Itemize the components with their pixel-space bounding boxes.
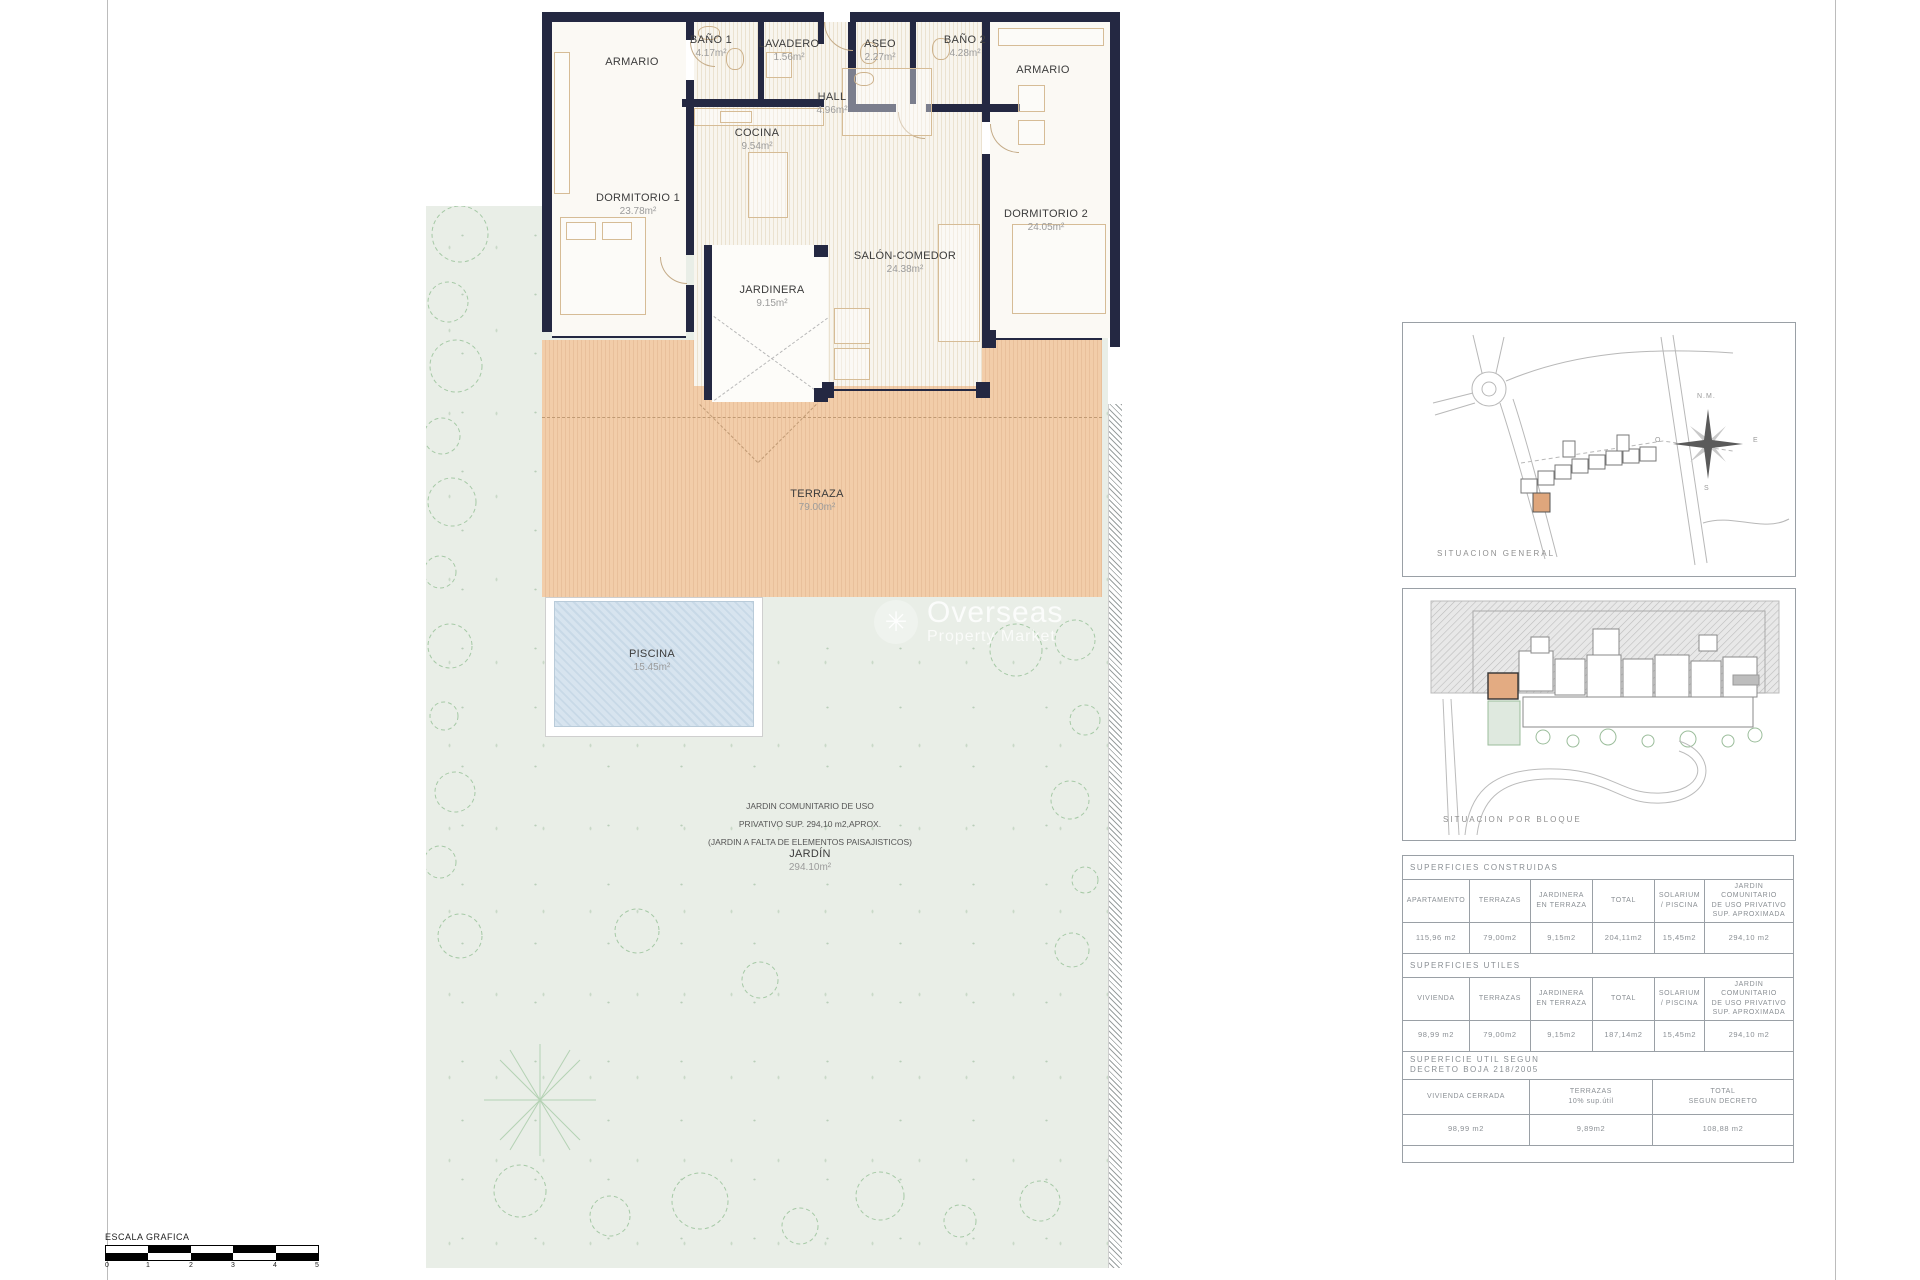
tree	[1051, 781, 1089, 819]
table-value-cell: 115,96 m2	[1403, 923, 1469, 953]
room-area-jardinera: 9.15m²	[739, 298, 804, 309]
room-area-dormitorio2: 24.05m²	[1004, 222, 1088, 233]
compass-north-label: N.M.	[1697, 393, 1716, 400]
table-header-cell: TOTAL SEGUN DECRETO	[1652, 1080, 1793, 1114]
plan-sheet: ARMARIO BAÑO 14.17m² LAVADERO1.56m² ASEO…	[0, 0, 1920, 1280]
table-header-cell: JARDIN COMUNITARIO DE USO PRIVATIVO SUP.…	[1704, 978, 1793, 1020]
window	[834, 389, 976, 391]
situation-bloque-map	[1403, 589, 1793, 838]
table-value-cell: 9,15m2	[1530, 923, 1592, 953]
palm-tree	[484, 1044, 596, 1156]
tree	[432, 206, 488, 262]
wall	[976, 382, 990, 398]
furniture-armchair	[834, 348, 870, 380]
watermark-brand: Overseas	[927, 598, 1063, 628]
room-label-cocina: COCINA	[735, 127, 780, 139]
scale-ticks: 0 1 2 3 4 5	[105, 1262, 319, 1274]
room-label-jardin: JARDÍN	[789, 848, 831, 860]
table-header-cell: JARDINERA EN TERRAZA	[1530, 978, 1592, 1020]
situation-general-caption: SITUACION GENERAL	[1437, 549, 1555, 558]
table-value-cell: 15,45m2	[1654, 923, 1704, 953]
room-area-hall: 4.96m²	[816, 105, 847, 116]
compass-rose-icon	[1673, 409, 1743, 479]
situation-bloque-caption: SITUACION POR BLOQUE	[1443, 815, 1582, 824]
room-area-terraza: 79.00m²	[790, 502, 843, 513]
room-area-jardin: 294.10m²	[789, 862, 831, 873]
situation-general-map	[1403, 323, 1793, 574]
room-area-dormitorio1: 23.78m²	[596, 206, 680, 217]
table-header-cell: TERRAZAS	[1469, 880, 1530, 922]
tree	[426, 418, 460, 454]
table-header-cell: JARDINERA EN TERRAZA	[1530, 880, 1592, 922]
wall	[982, 112, 990, 122]
table-value-row: 115,96 m2 79,00m2 9,15m2 204,11m2 15,45m…	[1403, 923, 1793, 954]
tree	[856, 1172, 904, 1220]
room-label-salon: SALÓN-COMEDOR	[854, 250, 956, 262]
compass-west-label: O	[1655, 437, 1661, 444]
tree	[428, 478, 476, 526]
furniture-cabinet	[1018, 85, 1045, 112]
tree	[742, 962, 778, 998]
table-header-cell: JARDIN COMUNITARIO DE USO PRIVATIVO SUP.…	[1704, 880, 1793, 922]
tree	[438, 914, 482, 958]
scale-tick: 4	[273, 1262, 277, 1269]
tree	[430, 702, 458, 730]
highlighted-unit	[1488, 673, 1518, 699]
table-value-cell: 79,00m2	[1469, 923, 1530, 953]
tree	[494, 1165, 546, 1217]
furniture-hob	[720, 111, 752, 123]
tree	[1072, 867, 1098, 893]
furniture-wardrobe	[998, 28, 1104, 46]
room-area-cocina: 9.54m²	[735, 141, 780, 152]
scale-tick: 2	[189, 1262, 193, 1269]
room-floor-jardinera	[712, 245, 828, 402]
table-header-cell: TERRAZAS	[1469, 978, 1530, 1020]
table-header-cell: SOLARIUM / PISCINA	[1654, 978, 1704, 1020]
room-label-dormitorio2: DORMITORIO 2	[1004, 208, 1088, 220]
wall	[1110, 22, 1120, 347]
wall	[926, 104, 1020, 112]
room-area-bano2: 4.28m²	[944, 48, 986, 59]
table-value-cell: 294,10 m2	[1704, 1021, 1793, 1051]
table-bottom-padding	[1403, 1146, 1793, 1162]
tree	[428, 624, 472, 668]
tree	[944, 1205, 976, 1237]
tree	[782, 1208, 818, 1244]
furniture-bed	[1012, 224, 1106, 314]
graphic-scale: ESCALA GRAFICA 0 1 2 3 4 5	[105, 1232, 319, 1274]
tree	[1070, 705, 1100, 735]
table-title-useful: SUPERFICIES UTILES	[1403, 954, 1793, 978]
door-opening	[824, 12, 850, 22]
tree	[426, 846, 456, 878]
wall	[542, 22, 552, 332]
tree	[430, 340, 482, 392]
tree	[435, 772, 475, 812]
table-value-cell: 294,10 m2	[1704, 923, 1793, 953]
room-label-piscina: PISCINA	[629, 648, 675, 660]
room-label-dormitorio1: DORMITORIO 1	[596, 192, 680, 204]
window	[552, 336, 686, 338]
furniture-island	[748, 152, 788, 218]
table-value-cell: 9,89m2	[1529, 1115, 1652, 1145]
table-value-cell: 9,15m2	[1530, 1021, 1592, 1051]
table-value-cell: 98,99 m2	[1403, 1021, 1469, 1051]
wall	[814, 245, 828, 257]
room-area-aseo: 2.27m²	[864, 52, 896, 63]
tree	[590, 1196, 630, 1236]
boundary-hatch	[1108, 404, 1122, 1268]
room-label-hall: HALL	[818, 91, 847, 103]
sheet-border-left	[107, 0, 108, 1280]
roof-dashed-line	[699, 404, 758, 463]
furniture-pillow	[602, 222, 632, 240]
watermark-tagline: Property Market	[927, 628, 1063, 646]
tree	[672, 1173, 728, 1229]
room-area-salon: 24.38m²	[854, 264, 956, 275]
scale-tick: 0	[105, 1262, 109, 1269]
room-label-aseo: ASEO	[864, 38, 896, 50]
table-header-cell: APARTAMENTO	[1403, 880, 1469, 922]
wall	[682, 99, 824, 107]
window	[996, 338, 1102, 340]
scale-label: ESCALA GRAFICA	[105, 1232, 319, 1242]
room-label-lavadero: LAVADERO	[759, 38, 820, 50]
room-label-jardinera: JARDINERA	[739, 284, 804, 296]
furniture-cabinet	[1018, 120, 1045, 145]
furniture-armchair	[834, 308, 870, 344]
room-area-bano1: 4.17m²	[690, 48, 732, 59]
room-area-piscina: 15.45m²	[629, 662, 675, 673]
room-label-bano1: BAÑO 1	[690, 34, 732, 46]
furniture-pillow	[566, 222, 596, 240]
table-value-cell: 15,45m2	[1654, 1021, 1704, 1051]
table-value-cell: 187,14m2	[1592, 1021, 1654, 1051]
room-area-lavadero: 1.56m²	[759, 52, 820, 63]
tree	[426, 556, 456, 588]
table-header-cell: SOLARIUM / PISCINA	[1654, 880, 1704, 922]
tree	[1020, 1181, 1060, 1221]
garden-note: JARDIN COMUNITARIO DE USO PRIVATIVO SUP.…	[708, 801, 912, 847]
table-title-constructed: SUPERFICIES CONSTRUIDAS	[1403, 856, 1793, 880]
furniture-wardrobe	[554, 52, 570, 194]
table-header-cell: TERRAZAS 10% sup.útil	[1529, 1080, 1652, 1114]
table-value-cell: 204,11m2	[1592, 923, 1654, 953]
table-title-decree: SUPERFICIE UTIL SEGUN DECRETO BOJA 218/2…	[1403, 1052, 1793, 1080]
scale-tick: 1	[146, 1262, 150, 1269]
table-header-row: APARTAMENTO TERRAZAS JARDINERA EN TERRAZ…	[1403, 880, 1793, 923]
watermark: ✳ Overseas Property Market	[874, 598, 1063, 646]
wall	[814, 388, 828, 402]
table-value-cell: 79,00m2	[1469, 1021, 1530, 1051]
table-header-cell: VIVIENDA CERRADA	[1403, 1080, 1529, 1114]
tree	[428, 282, 468, 322]
highlighted-unit	[1533, 493, 1550, 512]
room-label-armario-1: ARMARIO	[605, 56, 658, 68]
wall	[704, 245, 712, 400]
scale-tick: 5	[315, 1262, 319, 1269]
wall	[982, 154, 990, 347]
table-header-cell: VIVIENDA	[1403, 978, 1469, 1020]
room-label-bano2: BAÑO 2	[944, 34, 986, 46]
situation-bloque-panel: SITUACION POR BLOQUE	[1402, 588, 1796, 841]
unit-garden	[1488, 701, 1520, 745]
watermark-sun-icon: ✳	[874, 600, 918, 644]
surface-tables: SUPERFICIES CONSTRUIDAS APARTAMENTO TERR…	[1402, 855, 1794, 1163]
roof-dashed-line	[758, 404, 817, 463]
compass-east-label: E	[1753, 437, 1759, 444]
table-value-cell: 108,88 m2	[1652, 1115, 1793, 1145]
table-header-row: VIVIENDA TERRAZAS JARDINERA EN TERRAZA T…	[1403, 978, 1793, 1021]
wall	[982, 330, 996, 348]
roof-dashed-line	[542, 417, 1102, 418]
wall	[686, 285, 694, 332]
scale-tick: 3	[231, 1262, 235, 1269]
room-label-terraza: TERRAZA	[790, 488, 843, 500]
sheet-border-right	[1835, 0, 1836, 1280]
table-value-row: 98,99 m2 79,00m2 9,15m2 187,14m2 15,45m2…	[1403, 1021, 1793, 1052]
tree	[1055, 933, 1089, 967]
tree	[615, 909, 659, 953]
table-value-row: 98,99 m2 9,89m2 108,88 m2	[1403, 1115, 1793, 1146]
compass-south-label: S	[1704, 485, 1710, 492]
table-header-cell: TOTAL	[1592, 880, 1654, 922]
table-value-cell: 98,99 m2	[1403, 1115, 1529, 1145]
table-header-cell: TOTAL	[1592, 978, 1654, 1020]
table-header-row: VIVIENDA CERRADA TERRAZAS 10% sup.útil T…	[1403, 1080, 1793, 1115]
sink	[854, 72, 874, 86]
scale-bar	[105, 1245, 319, 1261]
furniture-sofa	[938, 224, 980, 342]
room-label-armario-2: ARMARIO	[1016, 64, 1069, 76]
situation-general-panel: N.M. E S O SITUACION GENERAL	[1402, 322, 1796, 577]
